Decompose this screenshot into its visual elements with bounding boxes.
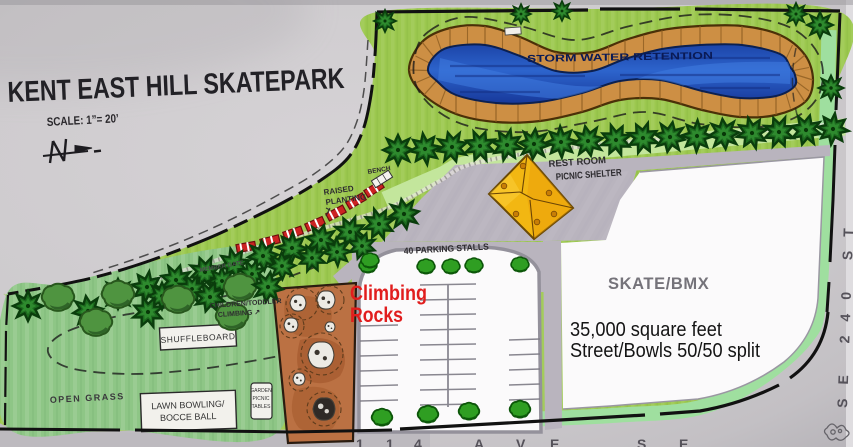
svg-text:35,000 square feet: 35,000 square feet [570,319,722,341]
svg-text:Climbing: Climbing [350,282,427,305]
svg-text:GARDEN: GARDEN [250,388,272,394]
svg-text:TABLES: TABLES [252,404,271,410]
svg-text:Rocks: Rocks [350,304,403,327]
svg-text:Street/Bowls 50/50 split: Street/Bowls 50/50 split [570,340,760,362]
svg-text:BOCCE BALL: BOCCE BALL [160,411,217,423]
svg-text:PICNIC: PICNIC [253,396,270,402]
svg-text:SKATE/BMX: SKATE/BMX [608,275,709,293]
